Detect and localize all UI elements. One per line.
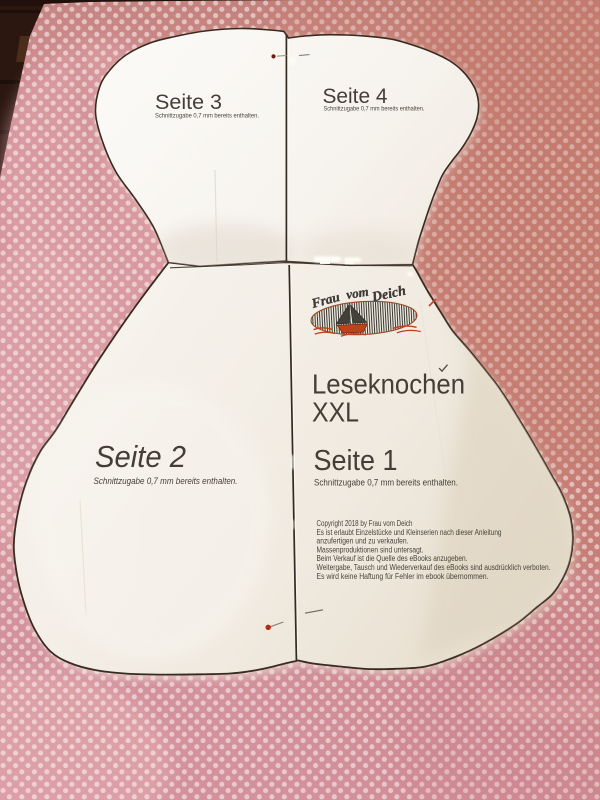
svg-text:anzufertigen und zu verkaufen.: anzufertigen und zu verkaufen.: [317, 537, 409, 546]
svg-text:Schnittzugabe 0,7 mm bereits e: Schnittzugabe 0,7 mm bereits enthalten.: [155, 113, 259, 120]
svg-text:Copyright 2018 by Frau vom Dei: Copyright 2018 by Frau vom Deich: [317, 519, 413, 528]
svg-text:Beim Verkauf ist die Quelle de: Beim Verkauf ist die Quelle des eBooks a…: [317, 554, 468, 563]
svg-text:Seite 3: Seite 3: [155, 91, 222, 114]
svg-text:Es wird keine Haftung für Fehl: Es wird keine Haftung für Fehler im eboo…: [317, 572, 489, 581]
svg-text:Leseknochen: Leseknochen: [312, 369, 465, 400]
svg-text:Massenproduktionen sind unters: Massenproduktionen sind untersagt.: [317, 545, 424, 554]
svg-text:XXL: XXL: [312, 397, 359, 428]
svg-text:Schnittzugabe 0,7 mm bereits e: Schnittzugabe 0,7 mm bereits enthalten.: [94, 476, 238, 486]
svg-text:Seite 1: Seite 1: [314, 445, 398, 477]
svg-text:Schnittzugabe 0,7 mm bereits e: Schnittzugabe 0,7 mm bereits enthalten.: [324, 106, 425, 113]
svg-text:Weitergabe, Tausch und Wiederv: Weitergabe, Tausch und Wiederverkauf des…: [317, 563, 551, 572]
svg-text:Seite 2: Seite 2: [95, 439, 186, 474]
svg-text:Schnittzugabe 0,7 mm bereits e: Schnittzugabe 0,7 mm bereits enthalten.: [314, 478, 458, 488]
svg-text:Es ist erlaubt Einzelstücke un: Es ist erlaubt Einzelstücke und Kleinser…: [317, 528, 502, 537]
